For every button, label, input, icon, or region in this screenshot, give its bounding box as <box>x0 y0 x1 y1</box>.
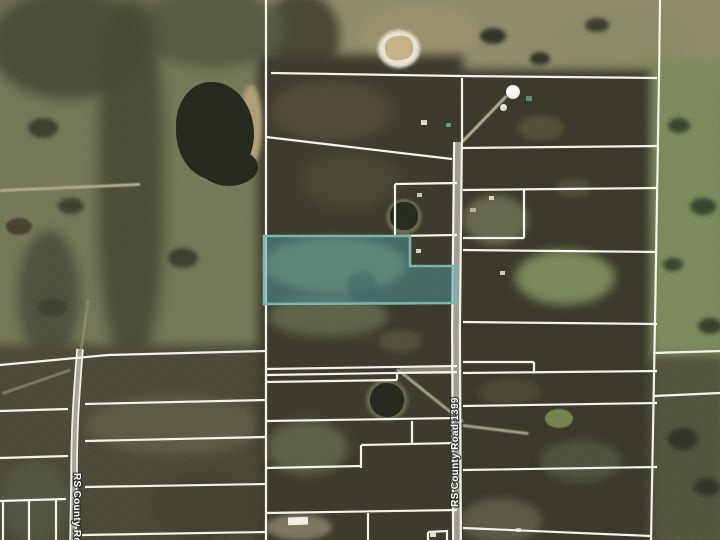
parcel-boundary-line <box>266 372 457 375</box>
parcel-boundary-line <box>85 437 266 441</box>
parcel-boundary-line <box>463 146 657 148</box>
parcel-boundary-line <box>266 380 397 382</box>
parcel-boundary-line <box>463 371 657 373</box>
parcel-boundary-line <box>266 418 457 421</box>
parcel-boundary-line <box>85 400 266 404</box>
parcel-boundary-line <box>271 73 657 78</box>
parcel-boundary-line <box>395 183 457 184</box>
parcel-boundary-line <box>653 351 720 353</box>
parcel-boundary-line <box>85 484 266 487</box>
parcel-boundary-line <box>82 532 266 535</box>
parcel-boundary-line <box>654 393 720 396</box>
parcel-boundary-line <box>0 351 266 365</box>
parcel-boundary-line <box>266 366 457 369</box>
parcel-boundary-line <box>463 322 657 324</box>
parcel-boundary-line <box>651 0 660 540</box>
parcel-boundary-line <box>463 528 651 536</box>
parcel-boundary-line <box>0 456 68 458</box>
parcel-boundary-line <box>463 467 657 470</box>
parcel-lines-layer: RS County Road 1399RS County Road <box>0 0 720 540</box>
parcel-boundary-line <box>463 250 657 252</box>
parcel-map[interactable]: RS County Road 1399RS County Road <box>0 0 720 540</box>
road-label: RS County Road 1399 <box>450 397 461 507</box>
parcel-boundary-line <box>266 466 361 468</box>
selected-parcel-highlight[interactable] <box>264 236 456 304</box>
road-label: RS County Road <box>71 473 82 540</box>
parcel-boundary-line <box>266 137 452 159</box>
parcel-boundary-line <box>428 531 447 540</box>
parcel-boundary-line <box>0 409 68 411</box>
parcel-boundary-line <box>463 188 657 190</box>
parcel-boundary-line <box>463 403 657 406</box>
parcel-boundary-line <box>361 443 457 445</box>
parcel-boundary-line <box>266 510 457 513</box>
